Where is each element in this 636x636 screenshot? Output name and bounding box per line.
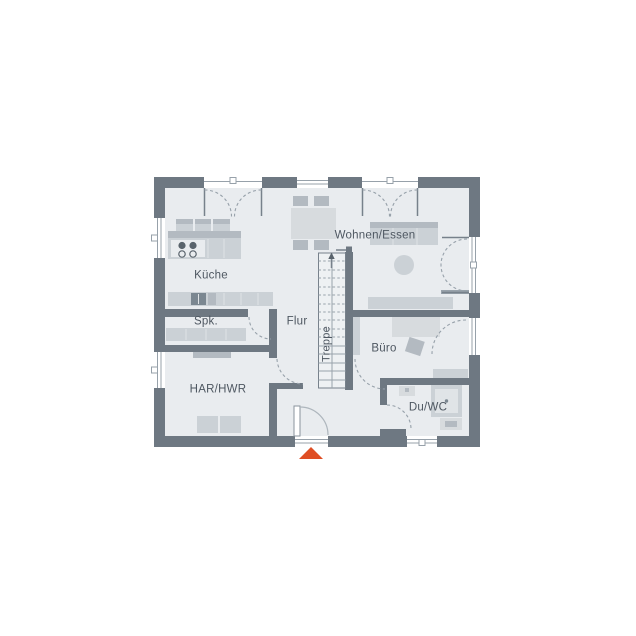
room-label-buero: Büro	[371, 343, 396, 355]
sideboard	[368, 297, 453, 309]
room-label-har-hwr: HAR/HWR	[190, 384, 247, 396]
stove-burner-icon	[179, 251, 185, 257]
office-shelf	[353, 317, 360, 355]
dining-table	[291, 208, 336, 239]
entrance-door-opening	[295, 436, 328, 447]
floor-plan-drawing	[0, 0, 636, 636]
entrance-door-leaf	[294, 406, 300, 436]
dryer	[220, 416, 241, 433]
stove-burner-icon	[178, 242, 185, 249]
window-office	[469, 318, 480, 355]
pantry-furniture	[166, 328, 246, 341]
room-label-du-wc: Du/WC	[409, 402, 447, 414]
coffee-table	[394, 255, 414, 275]
room-label-wohnen-essen: Wohnen/Essen	[335, 230, 416, 242]
window-top	[297, 177, 328, 188]
entrance-arrow-icon	[299, 447, 323, 459]
room-label-treppe: Treppe	[322, 326, 333, 362]
floor-plan: Küche Wohnen/Essen Spk. Flur Büro HAR/HW…	[0, 0, 636, 636]
desk	[392, 317, 440, 337]
sofa-back	[370, 222, 438, 228]
room-label-spk: Spk.	[194, 316, 218, 328]
washer	[197, 416, 218, 433]
stove-burner-icon	[189, 242, 196, 249]
room-label-kueche: Küche	[194, 270, 228, 282]
stove-burner-icon	[190, 251, 196, 257]
room-label-flur: Flur	[287, 316, 308, 328]
office-sideboard	[433, 369, 468, 378]
